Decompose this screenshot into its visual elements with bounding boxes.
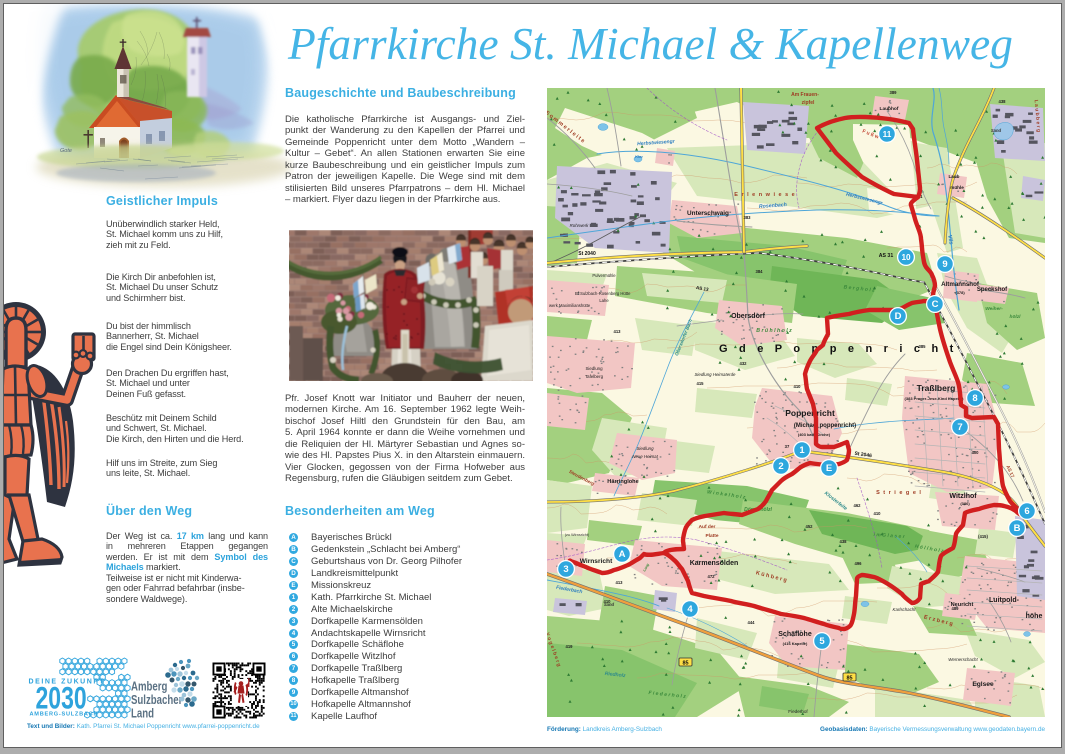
- svg-text:Land: Land: [131, 707, 154, 721]
- svg-text:(378): (378): [955, 290, 965, 295]
- svg-text:432: 432: [740, 361, 748, 366]
- svg-text:B: B: [1014, 523, 1021, 534]
- svg-text:Weiher-: Weiher-: [985, 306, 1003, 312]
- svg-text:A: A: [619, 549, 626, 560]
- svg-text:Platte: Platte: [705, 533, 718, 539]
- svg-text:AS 31: AS 31: [879, 253, 894, 259]
- svg-text:(383 Prager-Jese-Kind Kapelle): (383 Prager-Jese-Kind Kapelle): [905, 396, 965, 401]
- svg-text:496: 496: [855, 561, 863, 566]
- svg-text:11: 11: [883, 130, 892, 139]
- svg-text:385: 385: [919, 344, 927, 349]
- svg-text:438: 438: [999, 99, 1007, 104]
- svg-text:Lahe: Lahe: [599, 298, 609, 303]
- svg-text:5: 5: [819, 636, 825, 647]
- svg-text:10: 10: [901, 253, 911, 262]
- svg-text:Amberg: Amberg: [131, 680, 167, 694]
- svg-text:Siedlung Heimaterde: Siedlung Heimaterde: [694, 372, 736, 377]
- svg-text:472: 472: [708, 574, 716, 579]
- svg-text:Speckshof: Speckshof: [977, 287, 1008, 293]
- svg-text:452: 452: [806, 524, 814, 529]
- svg-text:(416 Kapelle): (416 Kapelle): [783, 641, 808, 646]
- svg-text:Am Frauen-: Am Frauen-: [791, 92, 819, 98]
- svg-text:438: 438: [840, 539, 848, 544]
- svg-text:Laubhof: Laubhof: [880, 106, 899, 112]
- svg-text:(zu Wirnsricht): (zu Wirnsricht): [565, 533, 590, 537]
- svg-text:St 2040: St 2040: [578, 251, 596, 257]
- svg-text:462: 462: [854, 503, 862, 508]
- svg-text:Laub: Laub: [949, 174, 960, 179]
- svg-text:Klar: Klar: [635, 154, 643, 159]
- svg-text:4: 4: [687, 604, 693, 615]
- svg-text:Obersdorf: Obersdorf: [731, 313, 766, 320]
- svg-text:444: 444: [748, 620, 756, 625]
- svg-text:6: 6: [1024, 506, 1029, 517]
- svg-text:410: 410: [604, 599, 612, 604]
- svg-text:Tafelberg: Tafelberg: [585, 374, 604, 379]
- svg-text:Schäflohe: Schäflohe: [778, 631, 812, 638]
- svg-text:Neue Heimat: Neue Heimat: [632, 454, 658, 459]
- svg-text:413: 413: [616, 580, 624, 585]
- svg-text:E r l e n w i e s e: E r l e n w i e s e: [734, 192, 796, 198]
- svg-text:Siedlung: Siedlung: [585, 366, 603, 371]
- svg-text:höhe: höhe: [1026, 613, 1043, 620]
- svg-text:Bf Sulzbach-Rosenberg Hütte: Bf Sulzbach-Rosenberg Hütte: [575, 291, 631, 296]
- svg-text:zipfel: zipfel: [802, 100, 815, 106]
- svg-text:(Michael poppenricht): (Michael poppenricht): [794, 423, 856, 429]
- svg-text:384: 384: [756, 269, 764, 274]
- svg-text:S t r i e g e l: S t r i e g e l: [876, 490, 922, 496]
- svg-text:Witzlhof: Witzlhof: [949, 493, 977, 500]
- svg-text:1: 1: [799, 445, 805, 456]
- svg-text:Rohrwerk: Rohrwerk: [570, 223, 590, 228]
- svg-text:383: 383: [744, 215, 752, 220]
- svg-text:8: 8: [972, 393, 977, 404]
- svg-text:Pulvermühle: Pulvermühle: [592, 273, 616, 278]
- svg-text:(386): (386): [960, 501, 970, 506]
- svg-text:389: 389: [890, 90, 898, 95]
- svg-text:410: 410: [794, 384, 802, 389]
- svg-text:Wernerschacht: Wernerschacht: [948, 657, 978, 662]
- svg-text:Traßlberg: Traßlberg: [917, 383, 956, 393]
- svg-text:D: D: [895, 311, 902, 322]
- svg-text:Sulzbacher: Sulzbacher: [131, 694, 183, 708]
- svg-text:7: 7: [957, 422, 962, 433]
- svg-text:Altmannshof: Altmannshof: [941, 281, 980, 288]
- svg-text:Karmensölden: Karmensölden: [690, 560, 739, 567]
- svg-text:9: 9: [942, 259, 947, 270]
- svg-text:C: C: [932, 299, 939, 310]
- svg-text:Gote: Gote: [60, 148, 72, 154]
- svg-text:415: 415: [697, 381, 705, 386]
- svg-text:Karlschacht: Karlschacht: [893, 607, 917, 612]
- svg-text:3: 3: [563, 564, 568, 575]
- svg-text:85: 85: [682, 661, 688, 667]
- svg-text:Härringlohe: Härringlohe: [607, 479, 638, 485]
- svg-text:410: 410: [874, 511, 882, 516]
- svg-text:400: 400: [972, 450, 980, 455]
- svg-text:Sand: Sand: [991, 128, 1002, 133]
- svg-text:Fiederhof: Fiederhof: [788, 709, 808, 714]
- svg-text:Luitpold-: Luitpold-: [989, 597, 1020, 604]
- svg-text:489: 489: [952, 606, 960, 611]
- svg-text:AMBERG-SULZBACH: AMBERG-SULZBACH: [30, 712, 99, 718]
- svg-text:Eglsee: Eglsee: [972, 681, 994, 688]
- svg-text:(415): (415): [978, 534, 988, 539]
- svg-text:Siedlung: Siedlung: [636, 446, 654, 451]
- svg-text:mühle: mühle: [950, 185, 964, 190]
- svg-text:2030: 2030: [36, 680, 87, 715]
- svg-text:Poppenricht: Poppenricht: [785, 408, 835, 418]
- svg-text:werk Maximilianshütte: werk Maximilianshütte: [549, 303, 591, 308]
- svg-text:Unterschwaig: Unterschwaig: [687, 210, 729, 217]
- svg-text:2: 2: [778, 461, 783, 472]
- svg-text:E: E: [826, 463, 832, 474]
- svg-text:37: 37: [785, 444, 790, 449]
- svg-text:Auf der: Auf der: [699, 524, 716, 530]
- svg-text:hölzl: hölzl: [1010, 314, 1022, 320]
- svg-text:419: 419: [566, 644, 574, 649]
- svg-text:B r ü h l h o l z: B r ü h l h o l z: [756, 328, 792, 334]
- svg-text:85: 85: [846, 676, 852, 682]
- svg-text:413: 413: [614, 329, 622, 334]
- svg-text:Wirnsricht: Wirnsricht: [580, 558, 613, 565]
